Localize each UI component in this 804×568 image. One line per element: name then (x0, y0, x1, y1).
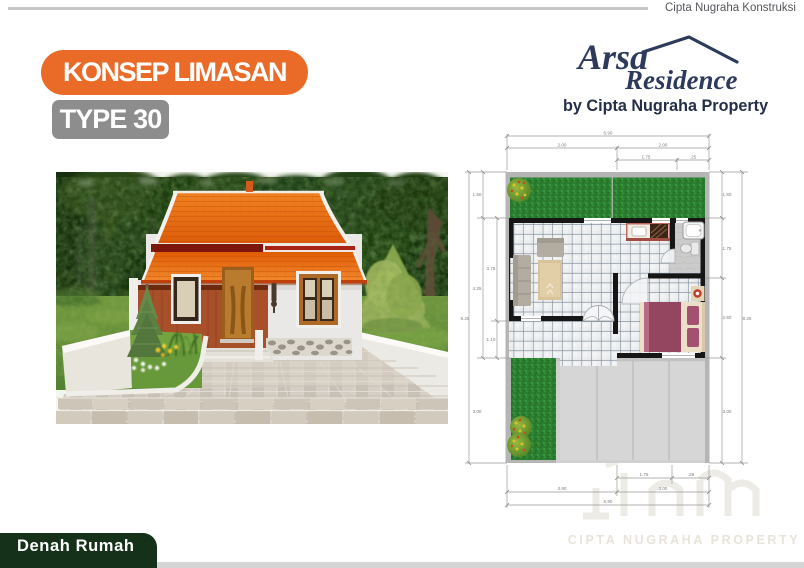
svg-text:Residence: Residence (624, 65, 737, 95)
svg-text:6.90: 6.90 (604, 499, 613, 504)
svg-text:4.25: 4.25 (473, 286, 482, 291)
svg-text:1.75: 1.75 (642, 155, 651, 160)
svg-text:2.00: 2.00 (659, 143, 668, 148)
svg-text:8.25: 8.25 (743, 316, 752, 321)
svg-text:2.00: 2.00 (558, 143, 567, 148)
svg-text:3.75: 3.75 (487, 266, 496, 271)
svg-text:1.50: 1.50 (723, 192, 732, 197)
svg-text:3.90: 3.90 (558, 486, 567, 491)
svg-text:CIPTA NUGRAHA PROPERTY: CIPTA NUGRAHA PROPERTY (568, 533, 800, 547)
svg-text:1.10: 1.10 (487, 337, 496, 342)
svg-text:8.25: 8.25 (461, 316, 470, 321)
svg-text:3.00: 3.00 (659, 486, 668, 491)
svg-text:2.50: 2.50 (723, 315, 732, 320)
svg-text:.25: .25 (688, 472, 695, 477)
svg-text:3.00: 3.00 (723, 409, 732, 414)
svg-text:.25: .25 (690, 155, 697, 160)
svg-text:by Cipta Nugraha Property: by Cipta Nugraha Property (563, 97, 768, 115)
svg-text:3.00: 3.00 (473, 409, 482, 414)
svg-text:6.90: 6.90 (604, 131, 613, 136)
svg-text:1.75: 1.75 (640, 472, 649, 477)
svg-text:1.75: 1.75 (723, 246, 732, 251)
svg-text:1.50: 1.50 (473, 192, 482, 197)
